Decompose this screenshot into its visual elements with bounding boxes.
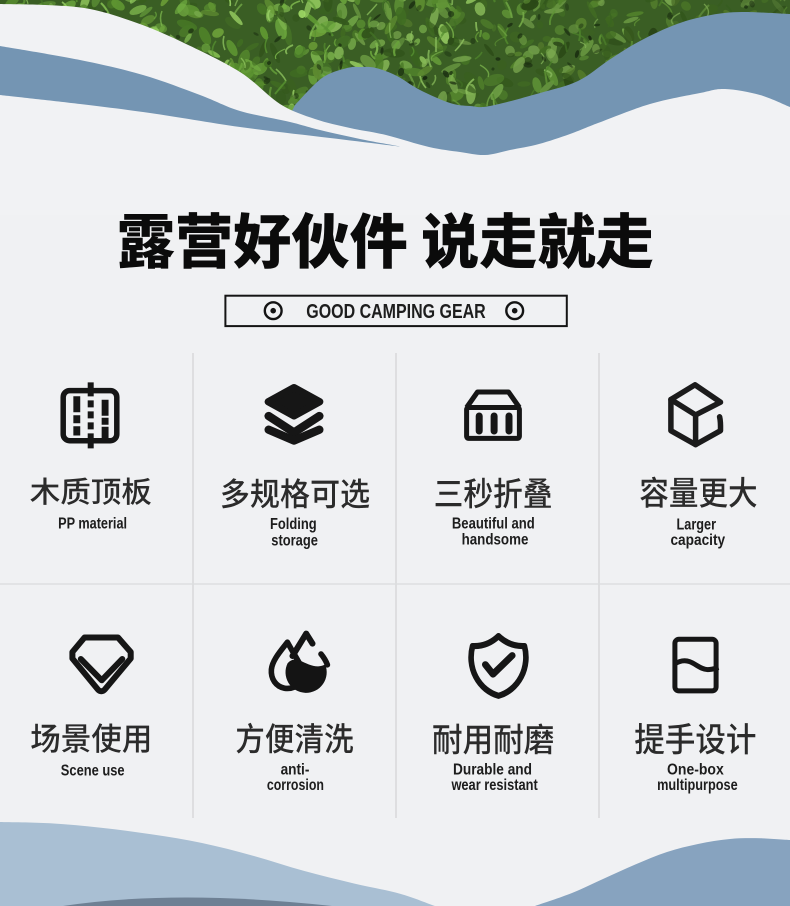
svg-text:wear resistant: wear resistant <box>451 777 538 794</box>
svg-text:One-box: One-box <box>667 761 724 778</box>
svg-text:Beautiful and: Beautiful and <box>452 516 535 533</box>
svg-text:Scene use: Scene use <box>61 762 125 779</box>
svg-text:handsome: handsome <box>462 532 529 549</box>
svg-text:PP material: PP material <box>58 516 127 533</box>
svg-text:storage: storage <box>271 532 318 549</box>
svg-text:Folding: Folding <box>270 516 317 533</box>
svg-text:anti-: anti- <box>281 761 310 778</box>
svg-text:Durable and: Durable and <box>453 761 532 778</box>
svg-text:Larger: Larger <box>677 516 717 533</box>
svg-text:multipurpose: multipurpose <box>657 777 738 794</box>
svg-text:capacity: capacity <box>670 532 725 549</box>
svg-text:GOOD CAMPING GEAR: GOOD CAMPING GEAR <box>306 301 486 323</box>
svg-text:corrosion: corrosion <box>267 777 324 794</box>
